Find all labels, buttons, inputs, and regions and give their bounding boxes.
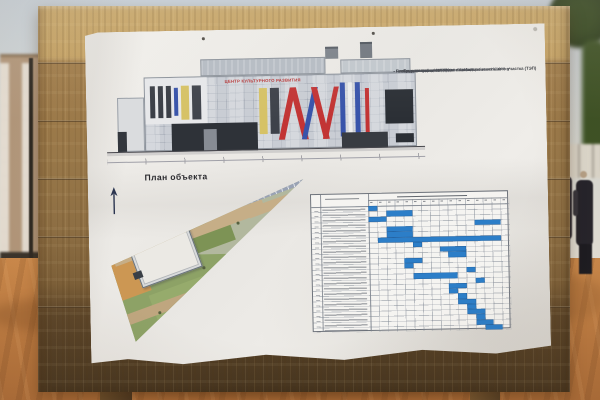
- gantt-bar: [466, 267, 475, 272]
- facade-stripe: [259, 88, 268, 134]
- person-2-arm: [573, 190, 578, 216]
- gantt-bars: [311, 191, 510, 331]
- facade-stripe: [181, 86, 190, 120]
- gantt-bar: [474, 219, 501, 225]
- nail: [372, 32, 375, 35]
- gantt-bar: [368, 216, 386, 222]
- gantt-bar: [414, 272, 458, 278]
- facade-stripe: [158, 86, 164, 118]
- facade-stripe: [396, 133, 414, 142]
- construction-poster: ЦЕНТР КУЛЬТУРНОГО РАЗВИТИЯ Технико-эконо…: [85, 23, 552, 366]
- person-2-head: [580, 171, 587, 178]
- tree-symbol: [202, 266, 205, 269]
- site-plan: [96, 168, 322, 352]
- nail: [534, 28, 537, 31]
- nail: [202, 37, 205, 40]
- gantt-bar: [475, 277, 484, 282]
- tree-symbol: [216, 210, 219, 213]
- facade-stripe: [323, 87, 339, 139]
- tree-symbol: [237, 222, 240, 225]
- gantt-bar: [386, 210, 413, 216]
- facade-stripe: [385, 89, 414, 124]
- facade-stripe: [150, 86, 156, 118]
- facade-stripe: [355, 82, 361, 136]
- person-2-legs: [579, 244, 592, 274]
- gantt-chart: [310, 190, 511, 332]
- rooftop-vent: [325, 47, 338, 59]
- photo-scene: ЦЕНТР КУЛЬТУРНОГО РАЗВИТИЯ Технико-эконо…: [0, 0, 600, 400]
- facade-stripe: [192, 85, 202, 119]
- tree-symbol: [158, 311, 161, 314]
- facade-stripe: [166, 86, 172, 118]
- facade-stripe: [174, 88, 179, 116]
- north-arrow-icon: [108, 186, 121, 216]
- gantt-bar: [405, 263, 414, 268]
- facade-stripe: [270, 88, 280, 134]
- facade-stripe: [348, 82, 353, 136]
- person-2-body: [576, 180, 593, 246]
- facade-stripe: [204, 129, 217, 151]
- facade-stripe: [365, 88, 370, 136]
- gantt-bar: [378, 235, 501, 243]
- facade-stripes: [145, 73, 416, 150]
- building-elevation: ЦЕНТР КУЛЬТУРНОГО РАЗВИТИЯ: [143, 53, 419, 152]
- gantt-bar: [449, 288, 458, 293]
- gantt-bar: [413, 242, 422, 247]
- rooftop-vent: [360, 42, 372, 58]
- site-boundary-triangle: [96, 168, 322, 352]
- gantt-bar: [448, 251, 466, 257]
- facade-stripe: [340, 82, 346, 136]
- building-facade: ЦЕНТР КУЛЬТУРНОГО РАЗВИТИЯ: [144, 72, 417, 151]
- annex-doorway: [118, 132, 127, 152]
- gantt-bar: [485, 324, 503, 330]
- gantt-bar: [368, 206, 377, 211]
